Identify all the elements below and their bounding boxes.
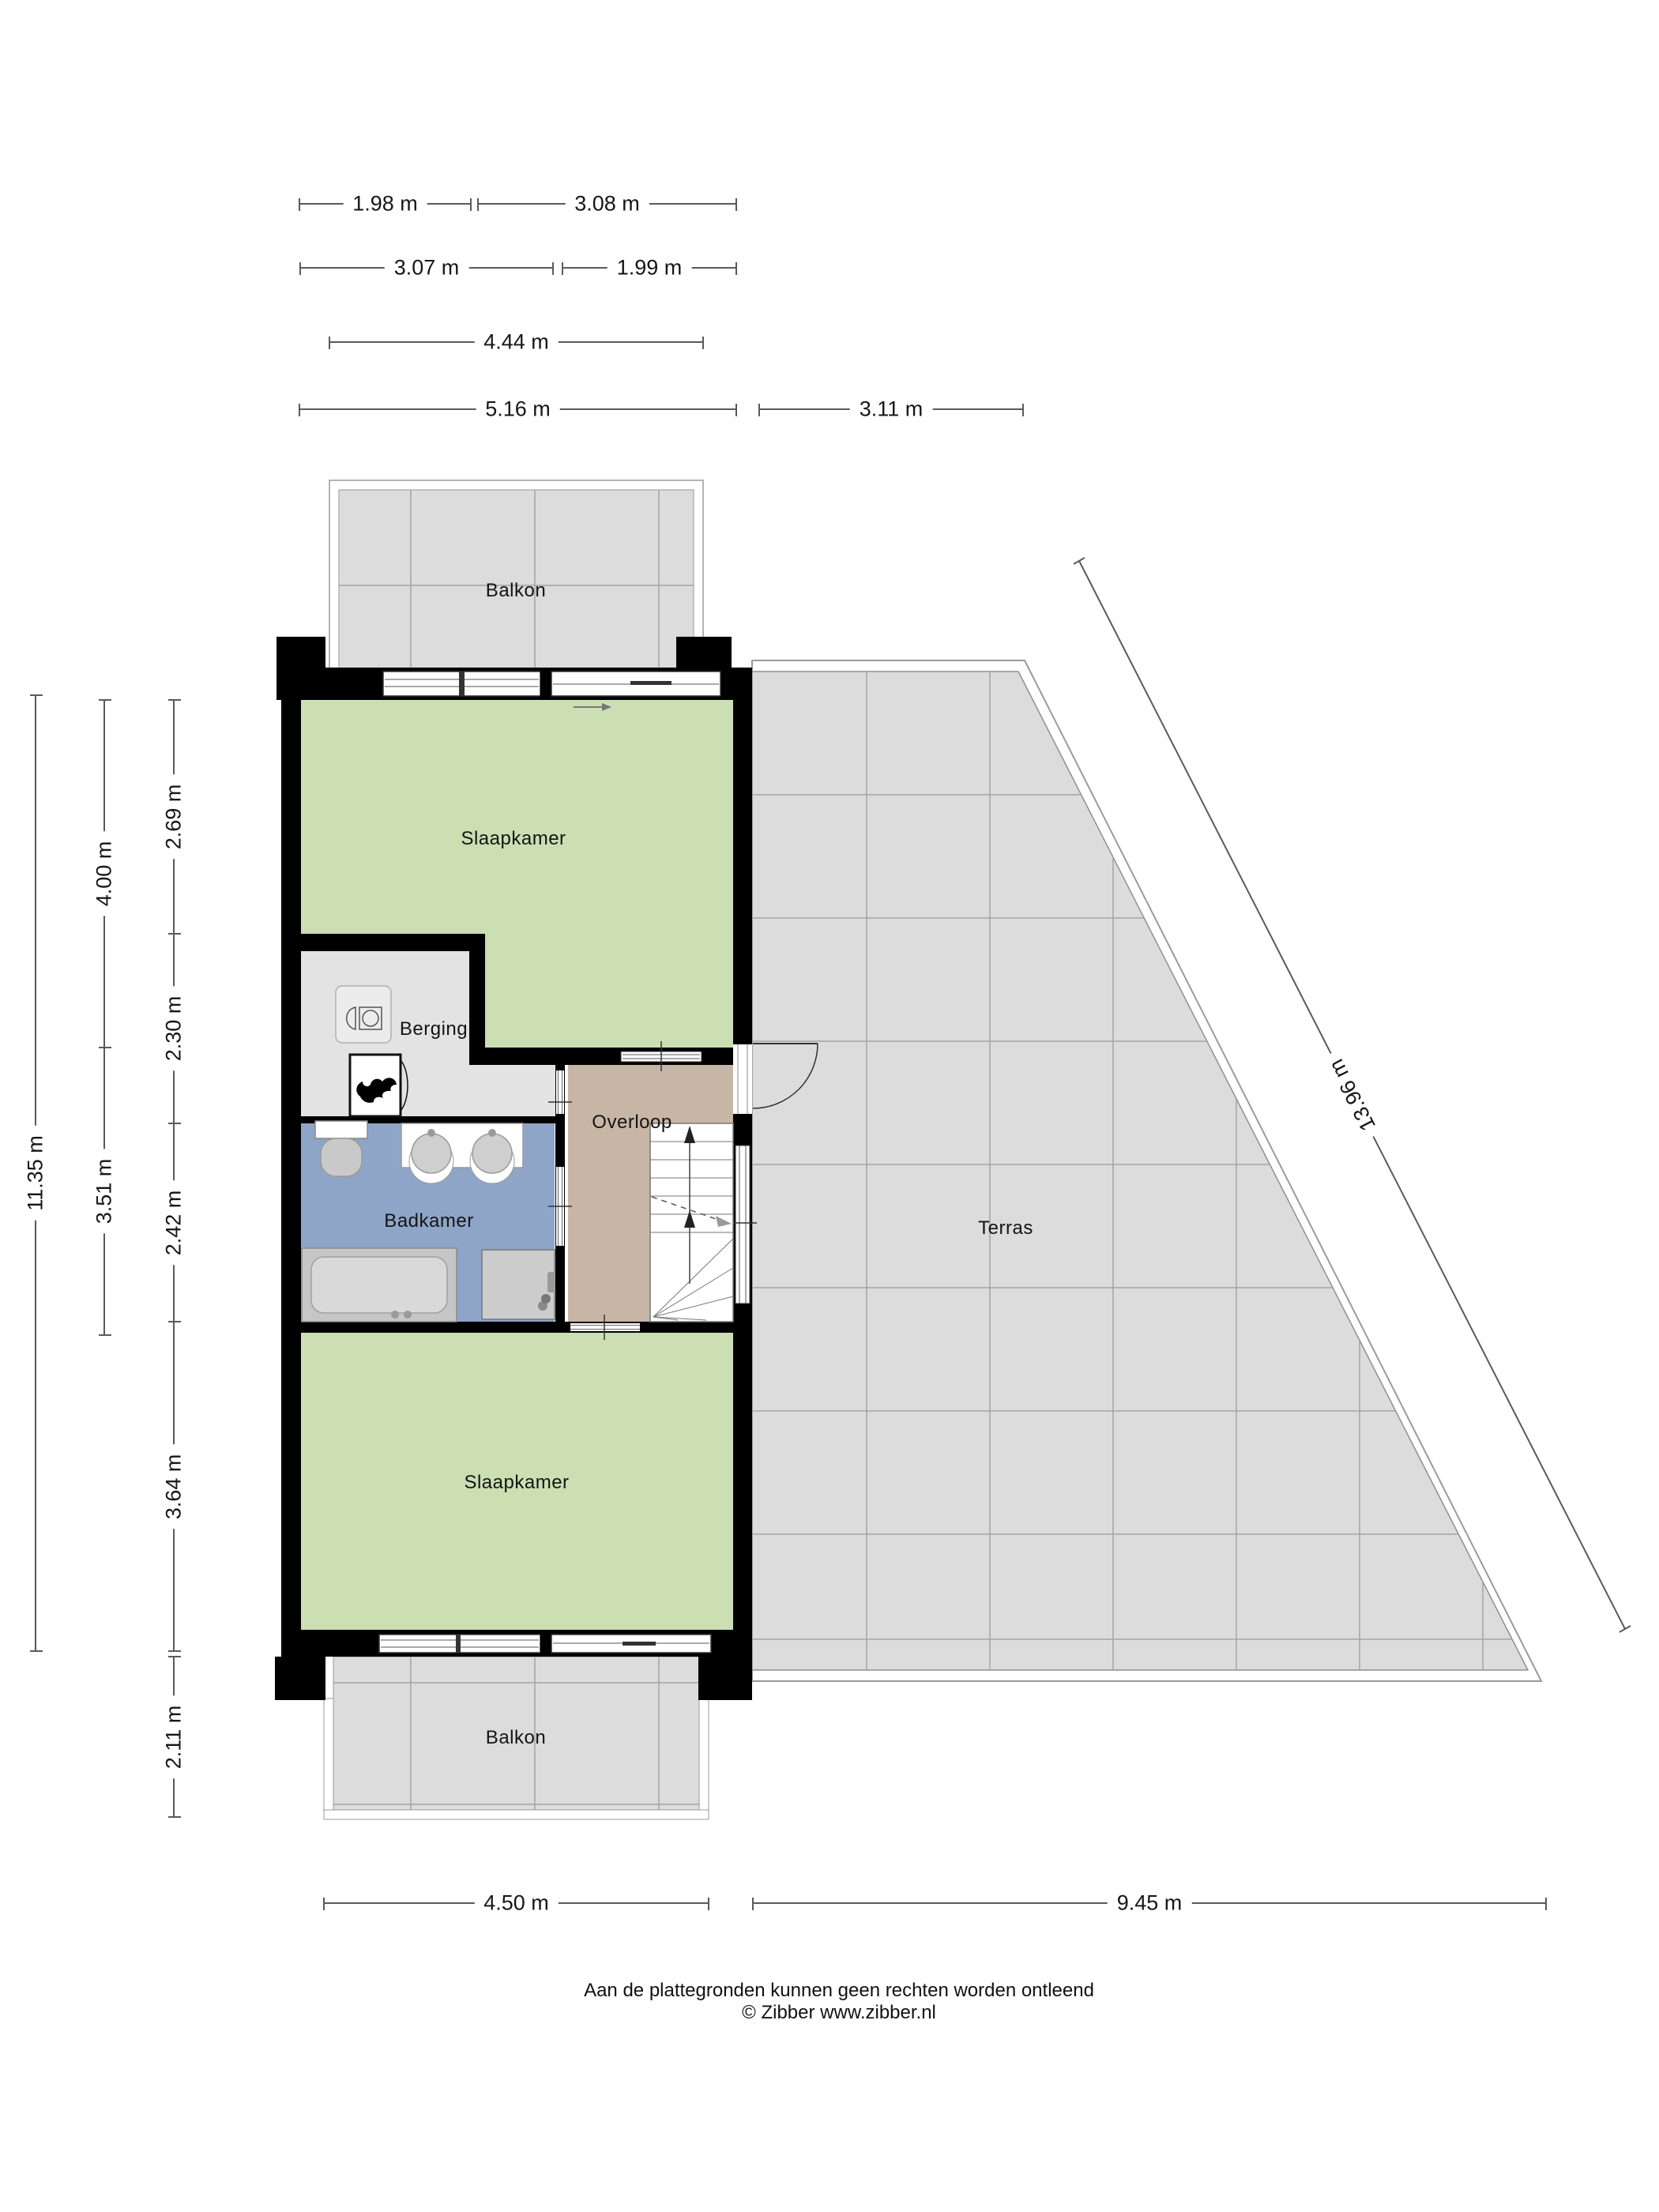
shower-fixture-icon: [547, 1272, 555, 1292]
dimension-top-3-11: 3.11 m: [759, 408, 1023, 410]
dimension-top-1-99: 1.99 m: [562, 267, 736, 269]
dimension-bottom-4-50: 4.50 m: [324, 1902, 709, 1904]
floorplan-drawing: [0, 0, 1659, 2212]
terrace: [752, 660, 1541, 1681]
dimension-left-11-35: 11.35 m: [35, 695, 36, 1651]
footer-copyright: © Zibber www.zibber.nl: [742, 2002, 936, 2024]
room-label-balkon-bottom: Balkon: [486, 1727, 546, 1749]
sink-icon: [412, 1134, 451, 1173]
dimension-top-3-08: 3.08 m: [478, 203, 736, 205]
dimension-top-4-44: 4.44 m: [329, 341, 703, 343]
room-label-overloop: Overloop: [592, 1112, 671, 1134]
pier-bottom-right: [698, 1657, 752, 1700]
room-label-slaapkamer-bottom: Slaapkamer: [464, 1472, 569, 1494]
toilet-icon: [321, 1138, 362, 1176]
toilet-cistern: [315, 1121, 367, 1138]
floorplan-page: Balkon Slaapkamer Berging Overloop Badka…: [0, 0, 1659, 2212]
pier-top-left: [276, 637, 325, 700]
room-label-balkon-top: Balkon: [486, 580, 546, 602]
footer-disclaimer: Aan de plattegronden kunnen geen rechten…: [584, 1980, 1094, 2002]
dimension-left-2-30: 2.30 m: [173, 934, 175, 1123]
dimension-left-3-64: 3.64 m: [173, 1322, 175, 1651]
dimension-top-1-98: 1.98 m: [299, 203, 471, 205]
room-label-terras: Terras: [978, 1217, 1033, 1240]
dimension-bottom-9-45: 9.45 m: [753, 1902, 1546, 1904]
room-label-badkamer: Badkamer: [384, 1210, 473, 1232]
pier-bottom-left: [275, 1657, 325, 1700]
sink2-icon: [472, 1134, 512, 1173]
stairs: [650, 1123, 733, 1322]
dimension-left-2-69: 2.69 m: [173, 700, 175, 934]
floor-berging-2: [469, 1065, 555, 1116]
room-label-slaapkamer-top: Slaapkamer: [461, 828, 566, 850]
dimension-top-3-07: 3.07 m: [300, 267, 553, 269]
room-label-berging: Berging: [400, 1018, 468, 1040]
dimension-left-3-51: 3.51 m: [103, 1048, 105, 1335]
dimension-left-2-11: 2.11 m: [173, 1657, 175, 1817]
dimension-top-5-16: 5.16 m: [299, 408, 736, 410]
dimension-left-2-42: 2.42 m: [173, 1123, 175, 1322]
dimension-left-4-00: 4.00 m: [103, 700, 105, 1048]
